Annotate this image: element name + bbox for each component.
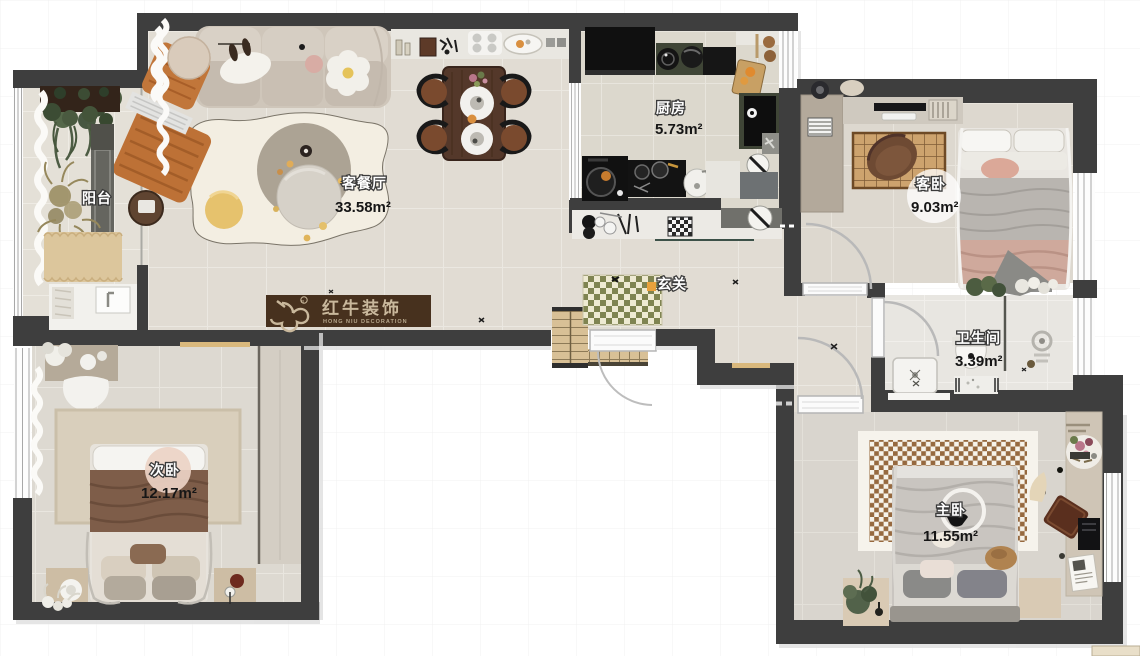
- svg-text:11.55m²: 11.55m²: [923, 528, 978, 545]
- svg-text:9.03m²: 9.03m²: [911, 199, 959, 216]
- svg-text:次卧: 次卧: [150, 462, 180, 478]
- svg-text:客卧: 客卧: [915, 176, 946, 192]
- svg-text:12.17m²: 12.17m²: [141, 485, 197, 502]
- svg-text:主卧: 主卧: [936, 502, 966, 518]
- svg-text:3.39m²: 3.39m²: [955, 353, 1003, 370]
- svg-text:厨房: 厨房: [656, 100, 686, 116]
- svg-text:HONG NIU DECORATION: HONG NIU DECORATION: [323, 319, 408, 325]
- svg-text:阳台: 阳台: [82, 190, 112, 206]
- svg-text:红牛装饰: 红牛装饰: [322, 298, 402, 318]
- svg-text:5.73m²: 5.73m²: [655, 121, 703, 138]
- svg-text:33.58m²: 33.58m²: [335, 199, 391, 216]
- svg-text:卫生间: 卫生间: [956, 330, 1001, 346]
- svg-text:玄关: 玄关: [657, 276, 687, 292]
- svg-text:客餐厅: 客餐厅: [341, 175, 387, 191]
